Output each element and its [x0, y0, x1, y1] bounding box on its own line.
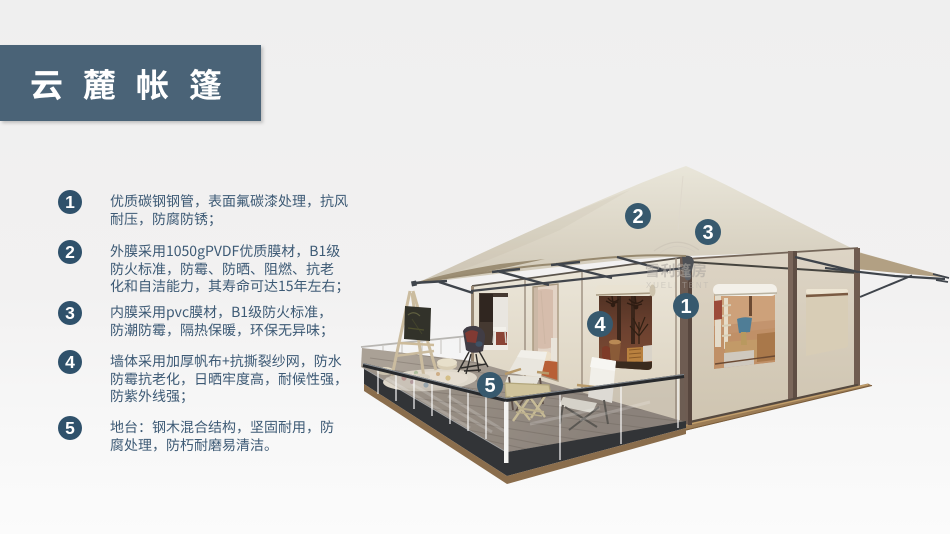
svg-text:4: 4 [594, 314, 606, 336]
svg-text:雪利篷房: 雪利篷房 [645, 260, 707, 281]
svg-text:1: 1 [680, 296, 691, 318]
svg-text:2: 2 [632, 206, 643, 228]
svg-text:3: 3 [702, 222, 713, 244]
svg-text:XUELI TENT: XUELI TENT [646, 281, 710, 290]
svg-text:5: 5 [484, 375, 495, 397]
